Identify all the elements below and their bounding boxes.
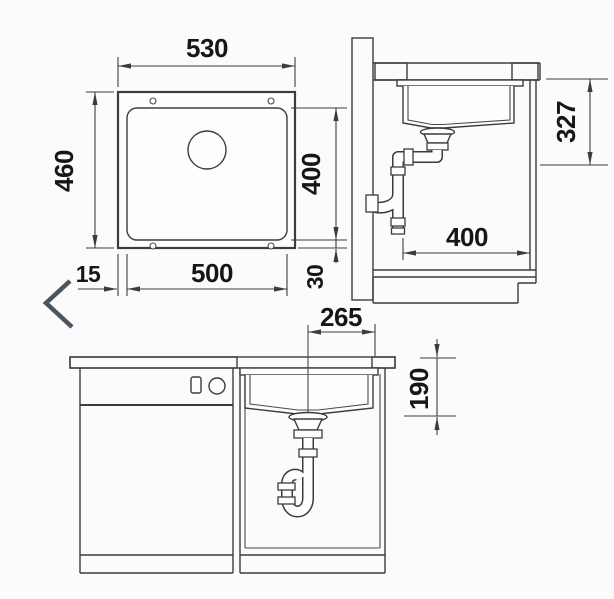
technical-drawing-page: 530 460 15 500 400 30 bbox=[0, 0, 614, 599]
countertop-section bbox=[373, 63, 540, 80]
drain-trap-front bbox=[278, 413, 327, 512]
dim-drain-offset: 265 bbox=[308, 302, 375, 356]
sink-flange-section bbox=[397, 80, 523, 86]
plan-view: 530 460 15 500 400 30 bbox=[46, 33, 347, 327]
dim-rim-offset: 15 bbox=[76, 254, 127, 296]
plan-rim-offset-label: 15 bbox=[76, 261, 101, 287]
dim-cabinet-interior-width: 400 bbox=[403, 222, 530, 260]
sink-bowl-outline bbox=[127, 108, 287, 240]
sink-installation-drawing: 530 460 15 500 400 30 bbox=[0, 0, 614, 599]
sink-flange-front bbox=[240, 368, 378, 375]
bowl-outer-front bbox=[245, 375, 373, 414]
dishwasher-cabinet bbox=[80, 368, 233, 573]
dim-drain-height: 327 bbox=[540, 79, 608, 165]
drain-trap-section bbox=[366, 128, 455, 234]
wall-hatch bbox=[352, 38, 373, 300]
plan-edge-clearance-label: 30 bbox=[302, 265, 328, 290]
plan-overall-width-label: 530 bbox=[186, 33, 228, 63]
dim-cutout-width: 500 bbox=[127, 254, 287, 296]
front-drain-offset-label: 265 bbox=[320, 302, 362, 332]
dim-overall-width: 530 bbox=[118, 33, 295, 87]
dim-overall-depth: 460 bbox=[49, 92, 114, 248]
plan-cutout-width-label: 500 bbox=[191, 258, 233, 288]
front-bowl-depth-label: 190 bbox=[404, 368, 434, 410]
section-view: 400 327 bbox=[352, 38, 608, 303]
dim-bowl-depth: 190 bbox=[404, 339, 456, 435]
view-direction-icon bbox=[46, 281, 72, 327]
dishwasher-knob-icon bbox=[209, 378, 225, 394]
dishwasher-panel-icon bbox=[191, 377, 201, 393]
section-interior-width-label: 400 bbox=[446, 222, 488, 252]
plan-cutout-depth-label: 400 bbox=[296, 153, 326, 195]
plan-overall-depth-label: 460 bbox=[49, 150, 79, 192]
drain-hole bbox=[188, 131, 226, 169]
countertop-front bbox=[70, 357, 395, 368]
dim-cutout-depth: 400 30 bbox=[291, 108, 347, 289]
section-drain-height-label: 327 bbox=[551, 101, 581, 143]
front-view: 265 190 bbox=[70, 302, 456, 573]
